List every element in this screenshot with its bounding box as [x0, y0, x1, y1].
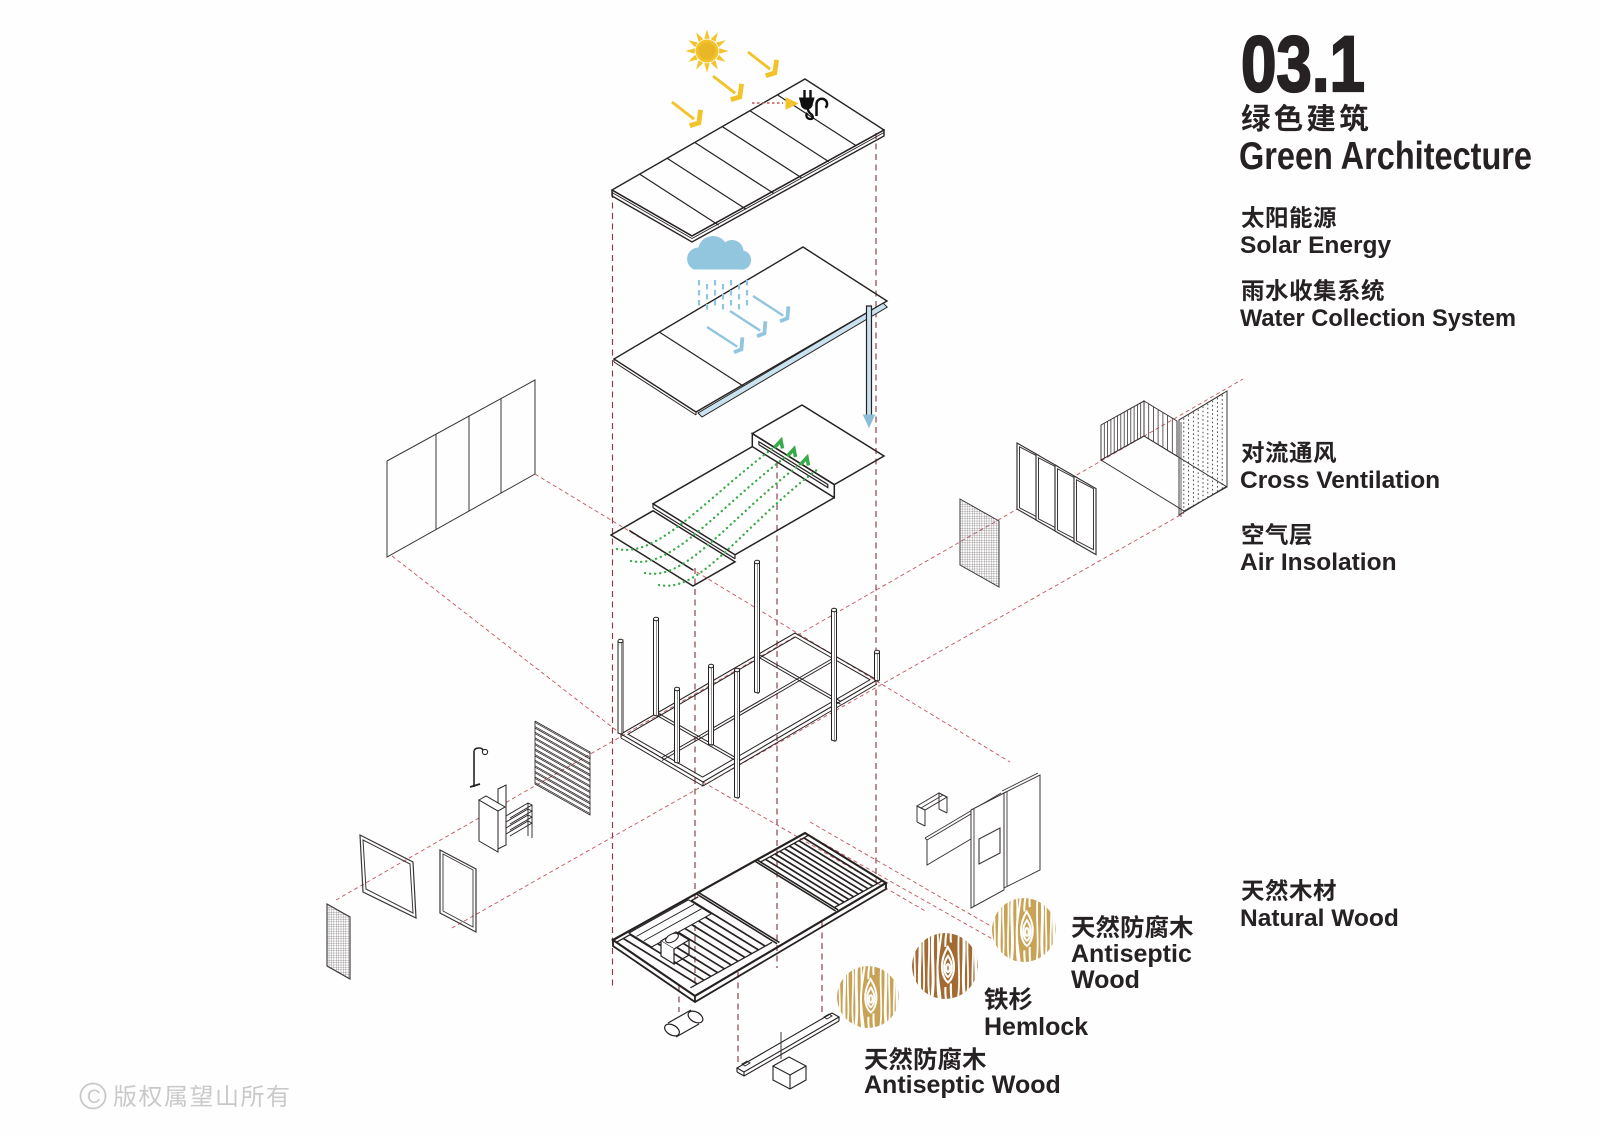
svg-text:Wood: Wood — [1071, 966, 1140, 994]
svg-text:Antiseptic Wood: Antiseptic Wood — [864, 1071, 1061, 1099]
svg-text:C: C — [87, 1087, 101, 1108]
svg-text:Natural Wood: Natural Wood — [1240, 905, 1399, 932]
svg-text:Air Insolation: Air Insolation — [1240, 549, 1397, 576]
svg-text:Antiseptic: Antiseptic — [1071, 940, 1192, 968]
svg-text:03.1: 03.1 — [1241, 19, 1365, 108]
svg-text:Water Collection System: Water Collection System — [1240, 305, 1516, 332]
svg-text:Green Architecture: Green Architecture — [1239, 135, 1532, 178]
svg-text:Hemlock: Hemlock — [984, 1013, 1088, 1041]
svg-text:Solar Energy: Solar Energy — [1240, 232, 1392, 259]
svg-text:Cross Ventilation: Cross Ventilation — [1240, 467, 1440, 494]
